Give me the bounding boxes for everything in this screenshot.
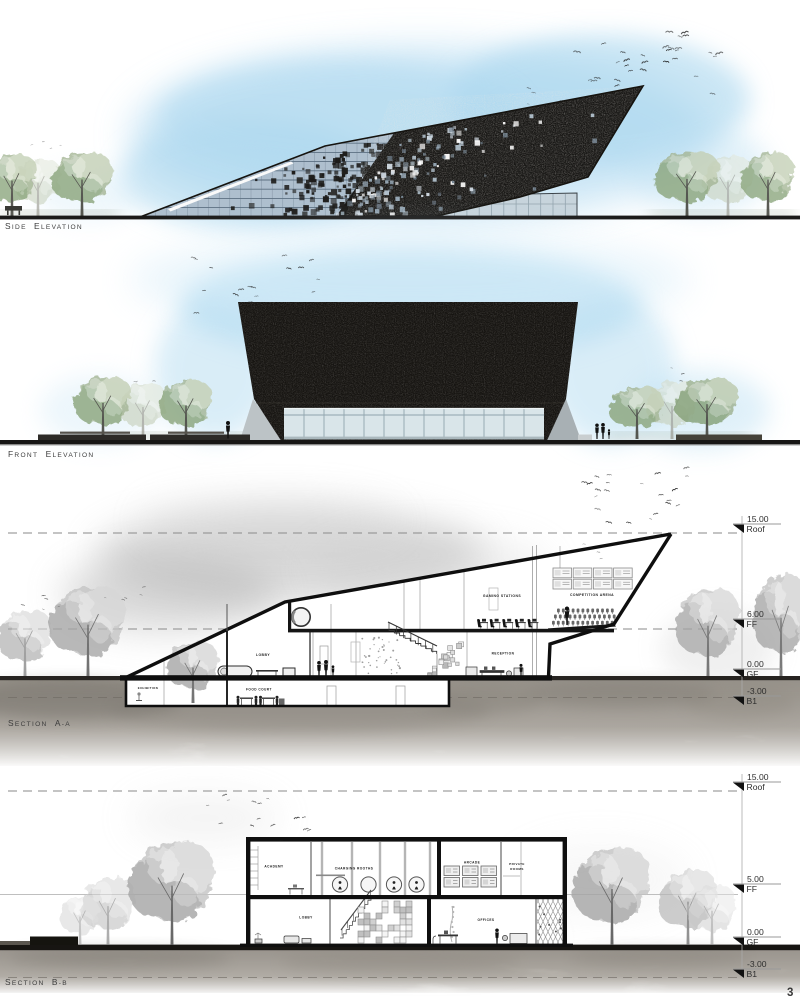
svg-text:15.00: 15.00	[747, 772, 769, 782]
svg-text:-3.00: -3.00	[747, 686, 767, 696]
svg-text:0.00: 0.00	[747, 927, 764, 937]
svg-text:FOOD COURT: FOOD COURT	[246, 688, 272, 692]
svg-text:GAMING STATIONS: GAMING STATIONS	[483, 594, 522, 598]
svg-text:LOBBY: LOBBY	[256, 653, 270, 657]
svg-text:ARCADE: ARCADE	[464, 861, 480, 865]
svg-text:Roof: Roof	[747, 782, 766, 792]
svg-text:3: 3	[787, 987, 793, 999]
svg-text:COMPETITION ARENA: COMPETITION ARENA	[570, 593, 614, 597]
svg-text:ROOMS: ROOMS	[510, 867, 524, 871]
svg-text:PRIVATE: PRIVATE	[509, 862, 525, 866]
svg-text:0.00: 0.00	[747, 659, 764, 669]
svg-text:B1: B1	[747, 696, 758, 706]
svg-text:EXHIBITION: EXHIBITION	[138, 686, 159, 690]
svg-text:LOBBY: LOBBY	[299, 916, 313, 920]
svg-text:OFFICES: OFFICES	[478, 918, 495, 922]
svg-text:B1: B1	[747, 969, 758, 979]
svg-text:6.00: 6.00	[747, 609, 764, 619]
svg-text:5.00: 5.00	[747, 874, 764, 884]
svg-text:FF: FF	[747, 884, 758, 894]
svg-text:15.00: 15.00	[747, 514, 769, 524]
svg-text:ACADEMY: ACADEMY	[264, 865, 284, 869]
svg-text:RECEPTION: RECEPTION	[492, 652, 515, 656]
svg-text:FF: FF	[747, 619, 758, 629]
svg-text:CHARGING ROOTHS: CHARGING ROOTHS	[335, 867, 374, 871]
svg-text:GF: GF	[747, 937, 759, 947]
svg-text:-3.00: -3.00	[747, 959, 767, 969]
svg-text:GF: GF	[747, 669, 759, 679]
svg-text:Roof: Roof	[747, 524, 766, 534]
